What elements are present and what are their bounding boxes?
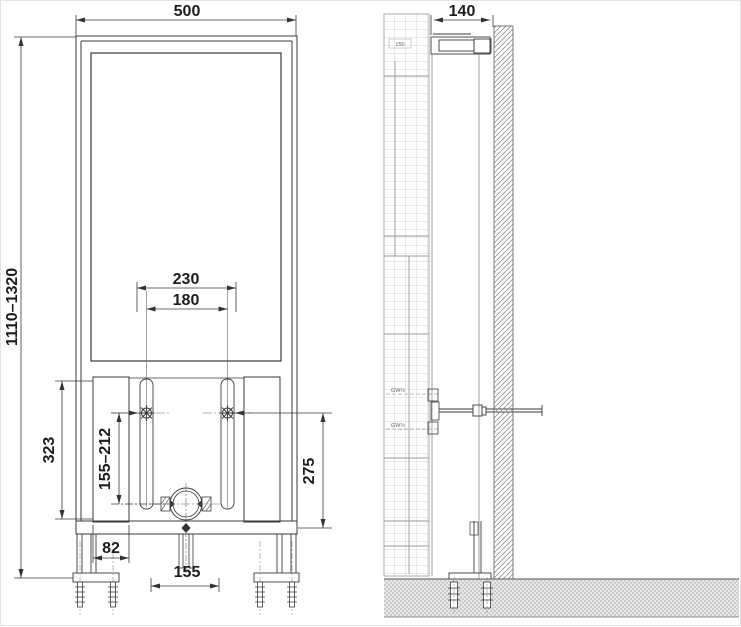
dim-overall-width: 500: [76, 3, 296, 36]
dim-fixing-spacing-outer-label: 230: [173, 271, 200, 288]
dim-frame-depth-label: 140: [449, 3, 476, 20]
dim-frame-depth: 140: [431, 3, 493, 35]
fixing-bolt-right-icon: [220, 405, 236, 421]
dim-foot-bracket-width: 82: [93, 525, 129, 563]
frame-side-profile: 150: [384, 14, 429, 576]
dim-fixing-to-outlet-label: 155–212: [97, 428, 114, 490]
side-foot: [449, 521, 491, 582]
dim-fixing-to-outlet: 155–212: [97, 413, 169, 504]
dim-installation-height-label: 1110–1320: [4, 268, 21, 346]
anchor-bolt-icon: [287, 541, 297, 615]
front-view: [73, 36, 299, 615]
thread-label-lower: GW½: [391, 422, 405, 429]
dim-outlet-opening-width: 155: [151, 564, 219, 592]
dim-lower-frame-height-label: 323: [41, 437, 58, 464]
wall-section: [494, 26, 513, 579]
dim-lower-frame-height: 323: [41, 381, 93, 519]
lower-side-panels: [93, 377, 280, 522]
side-dimensions: 140: [431, 3, 493, 35]
thread-label-upper: GW½: [391, 387, 405, 394]
side-view: 150 GW½ GW½: [384, 14, 739, 617]
dim-outlet-center-height: 275: [235, 413, 332, 528]
floor-section: [384, 577, 739, 617]
fixing-bolt-left-icon: [139, 405, 155, 421]
frame-rear-edges: [432, 54, 479, 579]
dim-installation-height: 1110–1320: [4, 37, 76, 578]
dim-fixing-spacing-inner: 180: [147, 292, 228, 309]
dim-foot-bracket-width-label: 82: [102, 540, 120, 557]
dim-outlet-opening-width-label: 155: [174, 564, 201, 581]
dim-overall-width-label: 500: [174, 3, 201, 20]
anchor-bolt-icon: [75, 541, 85, 615]
flush-actuator-unit: [431, 34, 491, 54]
anchor-bolt-icon: [255, 541, 265, 615]
drain-pipe-clamp: [151, 483, 221, 533]
front-dimensions: 500 1110–1320 230 180 323: [4, 3, 332, 592]
dim-fixing-spacing-inner-label: 180: [173, 292, 200, 309]
technical-drawing-sheet: 500 1110–1320 230 180 323: [0, 0, 741, 626]
fixing-rails: [111, 291, 253, 509]
cistern-outline: [91, 53, 281, 361]
dim-outlet-center-height-label: 275: [301, 458, 318, 485]
installation-frame-drawing: 500 1110–1320 230 180 323: [1, 1, 741, 627]
side-top-label: 150: [395, 42, 404, 48]
